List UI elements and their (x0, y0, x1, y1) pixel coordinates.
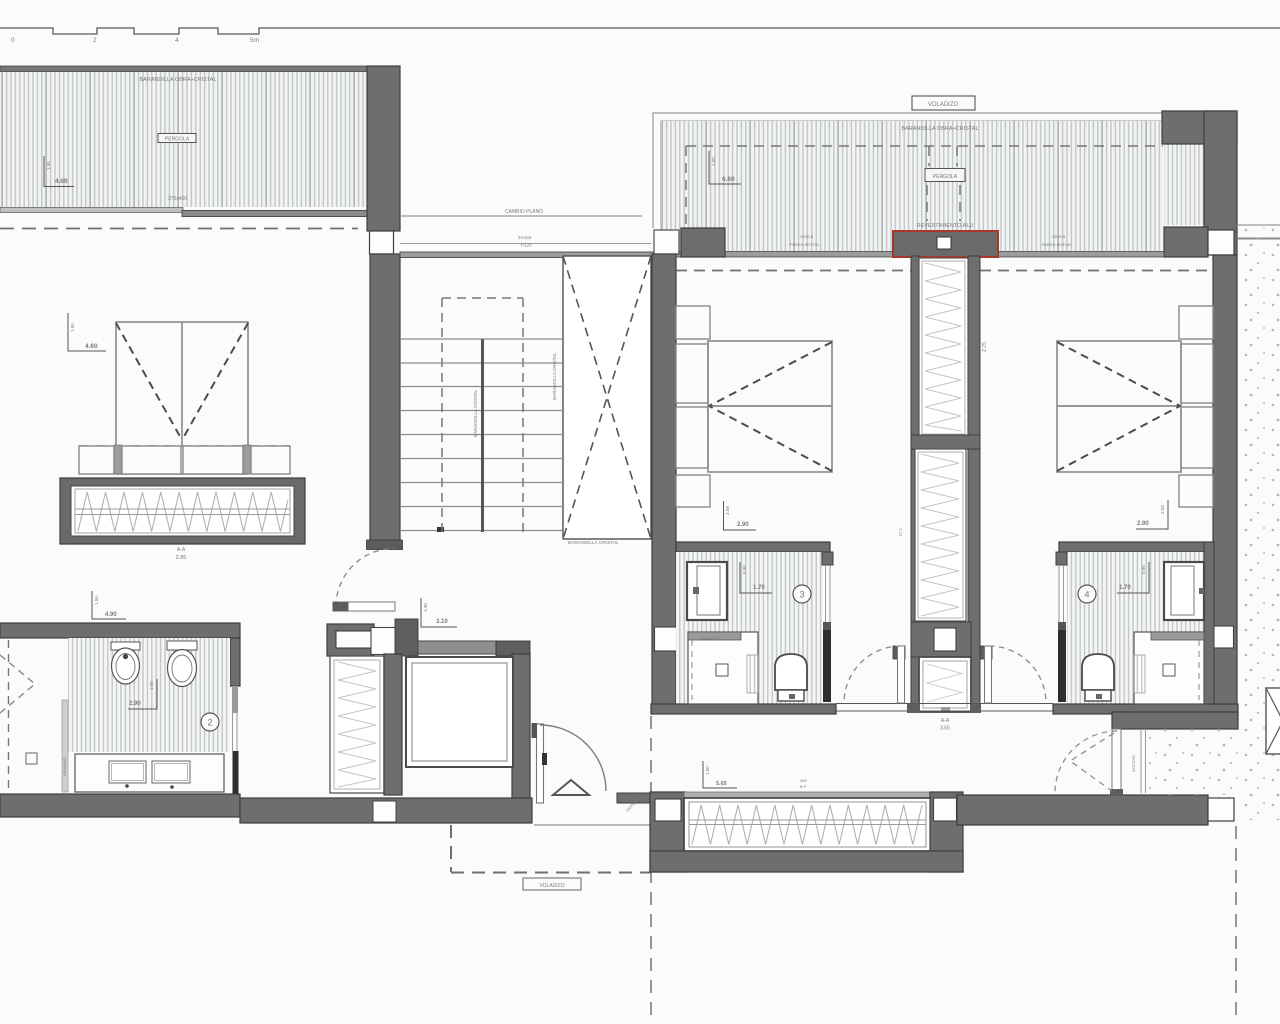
svg-text:PARED BOTON: PARED BOTON (1042, 242, 1071, 247)
svg-text:1.30: 1.30 (423, 603, 428, 612)
svg-text:3.58: 3.58 (725, 506, 730, 515)
svg-text:3.10: 3.10 (436, 619, 448, 625)
svg-text:ARMARIO: ARMARIO (62, 757, 67, 776)
svg-text:PERGOLA: PERGOLA (165, 137, 190, 143)
svg-text:A-A: A-A (941, 718, 950, 724)
svg-text:4: 4 (175, 37, 179, 44)
svg-text:1.50: 1.50 (70, 323, 75, 332)
svg-text:3.58: 3.58 (1160, 505, 1165, 514)
svg-text:2.90: 2.90 (1137, 521, 1149, 527)
svg-text:A-A: A-A (177, 547, 186, 553)
svg-text:B.P: B.P (800, 784, 807, 789)
svg-text:0.90: 0.90 (742, 565, 747, 574)
svg-text:4.90: 4.90 (105, 612, 117, 618)
svg-text:VOLADIZO: VOLADIZO (928, 102, 959, 108)
svg-text:P120: P120 (521, 243, 532, 248)
svg-text:1.50: 1.50 (46, 161, 51, 170)
svg-text:BARANDILLA CRISTAL: BARANDILLA CRISTAL (552, 352, 557, 400)
svg-text:BARANDILLA CRISTAL: BARANDILLA CRISTAL (473, 389, 478, 437)
svg-text:3: 3 (799, 590, 804, 600)
svg-text:1.50: 1.50 (705, 766, 710, 775)
svg-text:4.60: 4.60 (55, 178, 68, 185)
svg-text:365: 365 (800, 778, 807, 783)
svg-text:PARED BOTON: PARED BOTON (790, 242, 819, 247)
svg-text:6.60: 6.60 (722, 176, 735, 183)
svg-text:2.90: 2.90 (129, 701, 141, 707)
svg-text:5m: 5m (250, 37, 259, 44)
svg-text:5.65: 5.65 (716, 781, 727, 787)
svg-text:1.50: 1.50 (711, 157, 716, 166)
svg-text:57,2: 57,2 (898, 527, 903, 536)
svg-text:3.65: 3.65 (940, 726, 950, 732)
svg-text:370x400: 370x400 (168, 196, 187, 202)
svg-text:BARANDILLA CRISTAL: BARANDILLA CRISTAL (568, 540, 619, 546)
svg-text:0: 0 (11, 37, 15, 44)
svg-text:0.90: 0.90 (1141, 565, 1146, 574)
svg-text:1.70: 1.70 (753, 585, 765, 591)
svg-text:REVESTIMIENTO ALU: REVESTIMIENTO ALU (917, 223, 974, 229)
svg-text:CRIS B: CRIS B (1052, 234, 1066, 239)
svg-text:2.90: 2.90 (737, 522, 749, 528)
svg-text:ACCESO: ACCESO (1131, 755, 1136, 772)
svg-text:1.50: 1.50 (94, 596, 99, 605)
svg-text:34,5x6: 34,5x6 (518, 235, 532, 240)
svg-text:CRIS B: CRIS B (800, 234, 814, 239)
svg-text:BARANDILLA OBRA+CRISTAL: BARANDILLA OBRA+CRISTAL (139, 77, 216, 83)
svg-text:2.75: 2.75 (982, 342, 988, 352)
svg-text:CAMBIO PLANO: CAMBIO PLANO (505, 209, 543, 215)
svg-text:2.85: 2.85 (176, 555, 187, 561)
svg-text:PERGOLA: PERGOLA (933, 174, 958, 180)
svg-text:1.70: 1.70 (1119, 585, 1131, 591)
svg-text:BARANDILLA OBRA+CRISTAL: BARANDILLA OBRA+CRISTAL (901, 126, 978, 132)
svg-text:1.50: 1.50 (149, 681, 154, 690)
svg-text:2: 2 (207, 718, 212, 728)
svg-text:VOLADIZO: VOLADIZO (539, 883, 564, 889)
svg-text:LAVAMANOS: LAVAMANOS (699, 637, 721, 641)
svg-text:4: 4 (1084, 590, 1089, 600)
svg-text:2: 2 (93, 37, 97, 44)
svg-text:4.60: 4.60 (85, 343, 98, 350)
